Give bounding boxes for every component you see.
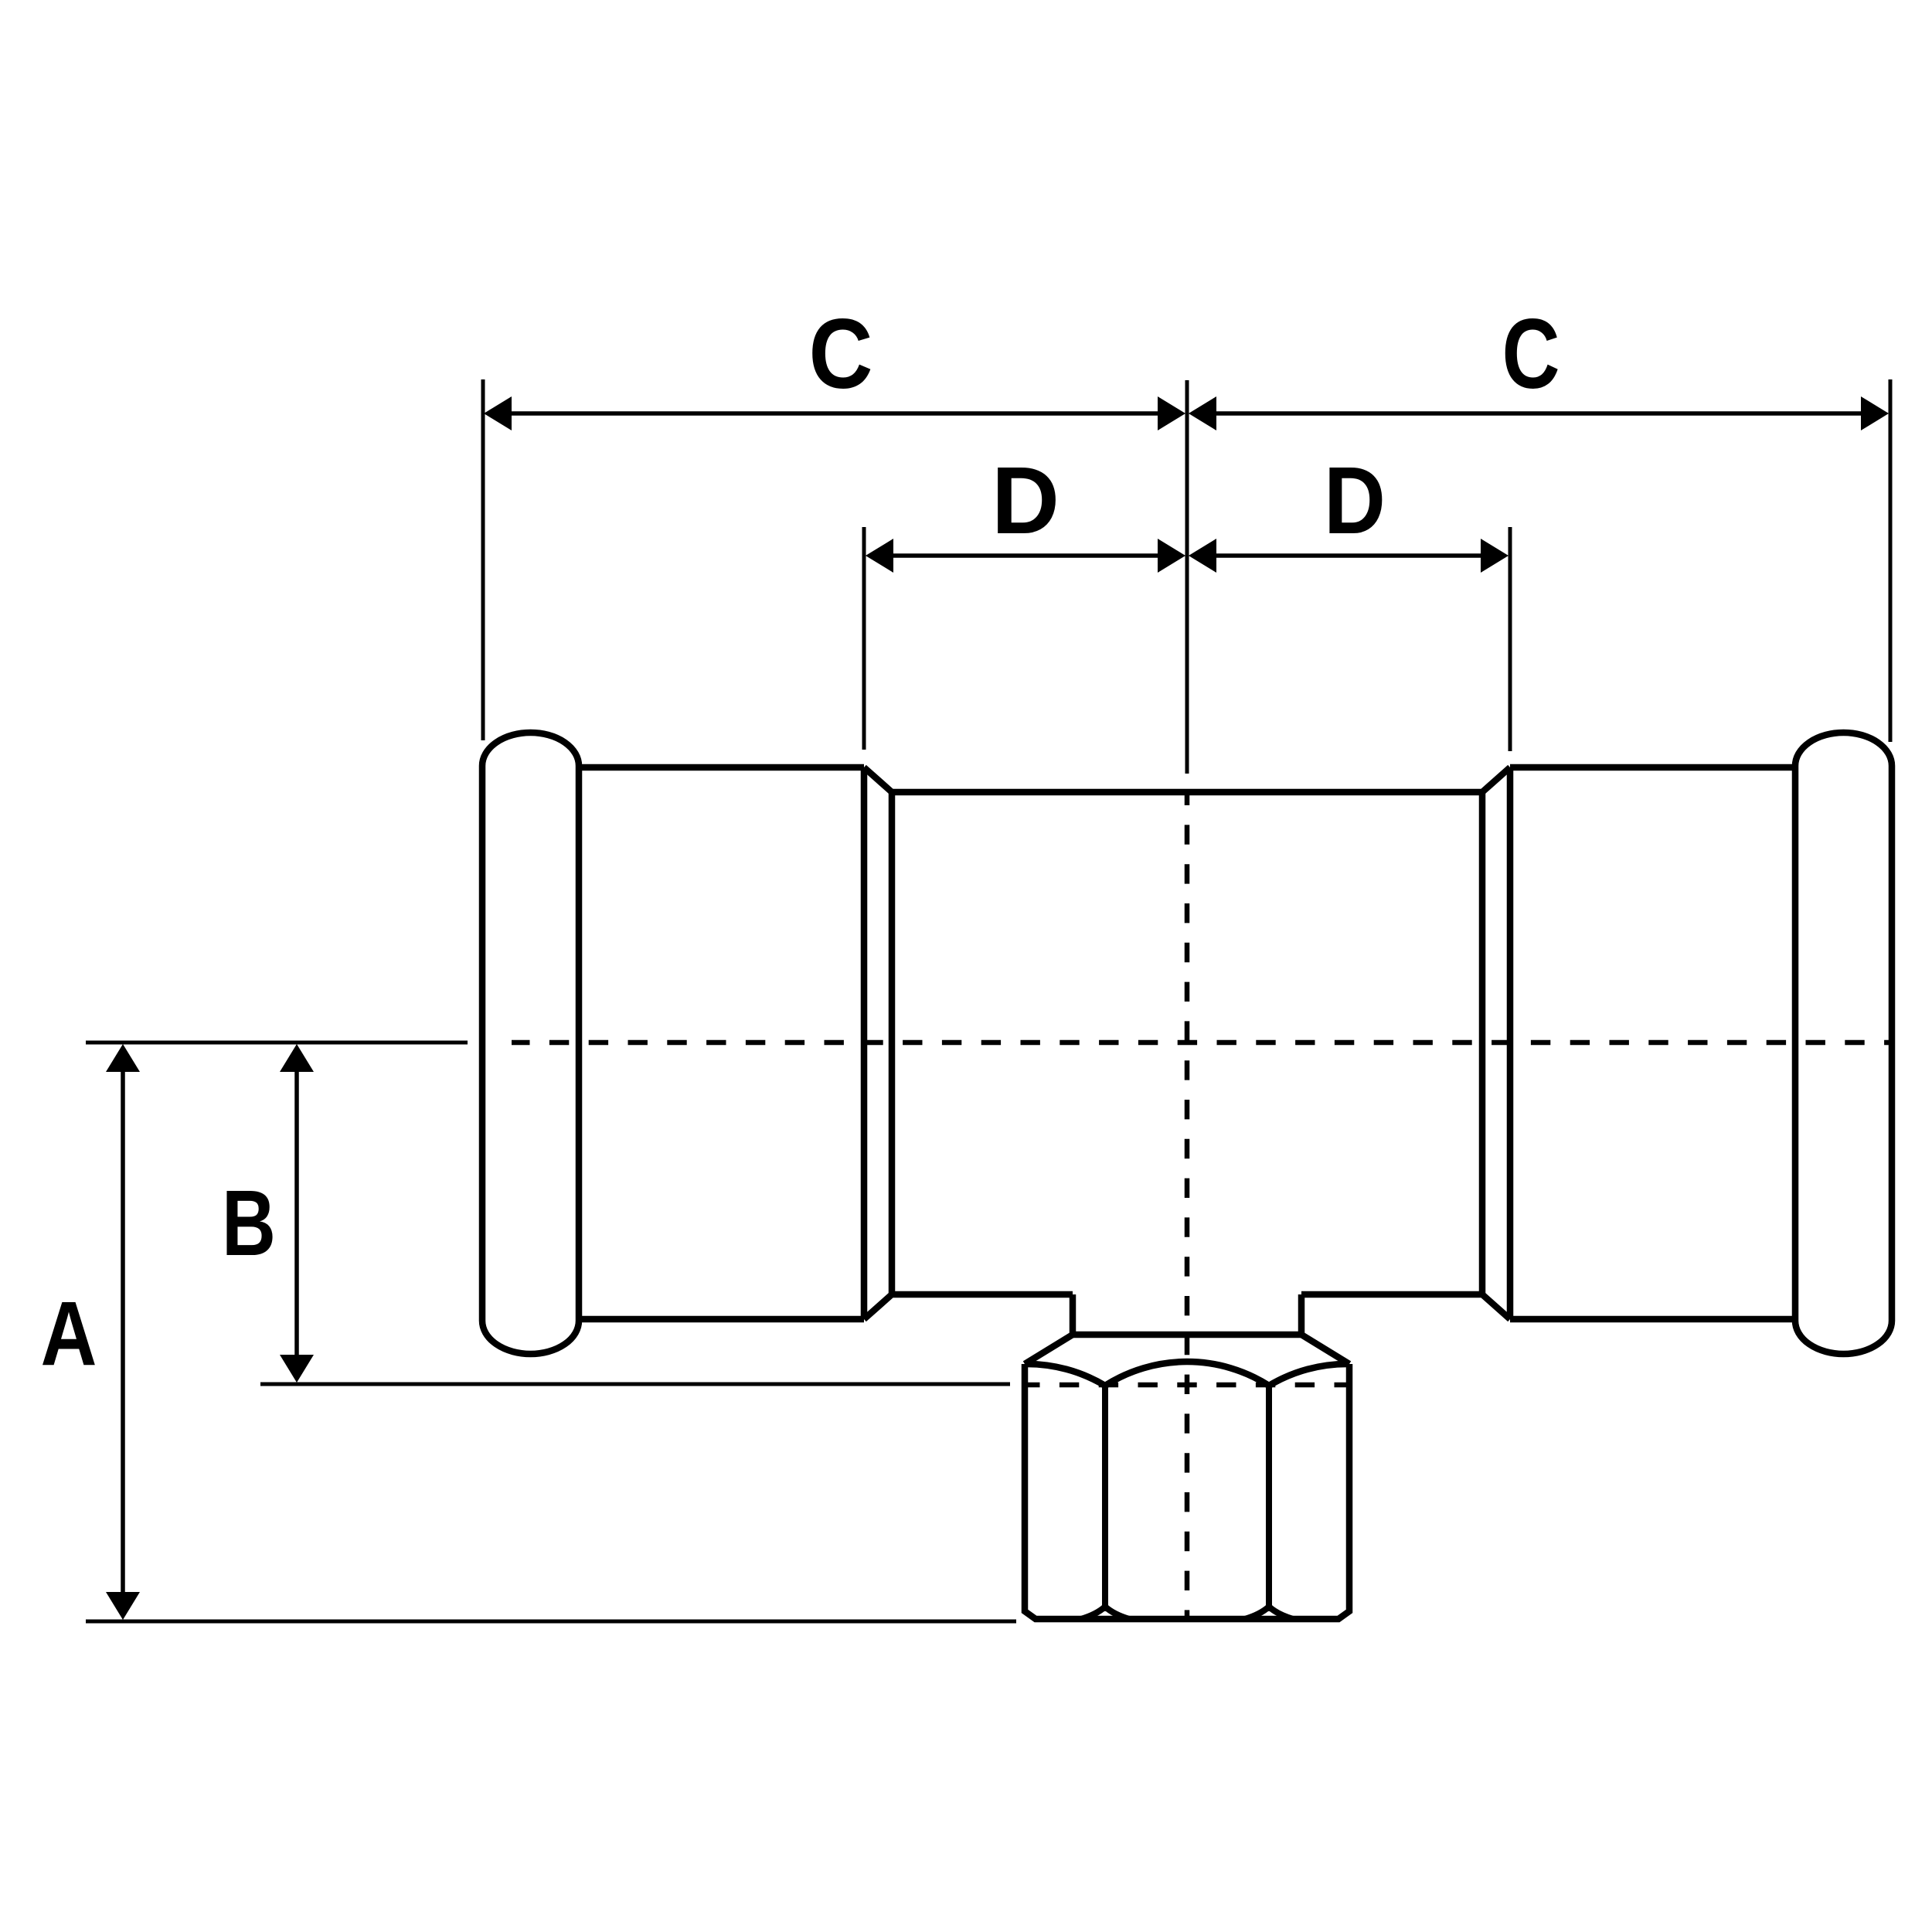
svg-text:A: A [41, 1283, 97, 1385]
svg-text:C: C [1502, 299, 1560, 410]
svg-text:B: B [222, 1170, 276, 1275]
svg-text:D: D [992, 448, 1060, 554]
svg-text:D: D [1324, 448, 1386, 554]
svg-text:C: C [809, 299, 873, 410]
